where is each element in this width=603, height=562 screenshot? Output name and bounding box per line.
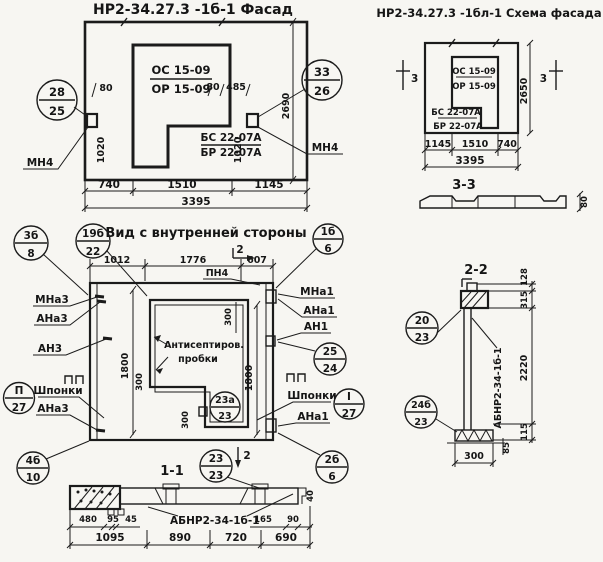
svg-text:МНа3: МНа3 xyxy=(35,294,69,306)
svg-text:3: 3 xyxy=(411,73,418,85)
view-label-ana1-bottom: АНа1 xyxy=(278,411,330,426)
view-callout-p-27: П 27 xyxy=(4,383,35,415)
svg-text:1776: 1776 xyxy=(180,255,207,266)
view-label-an3: АН3 xyxy=(33,339,106,355)
svg-text:1800: 1800 xyxy=(244,364,255,391)
svg-text:115: 115 xyxy=(520,423,530,441)
svg-text:2б: 2б xyxy=(325,454,340,466)
section-2-2-title: 2-2 xyxy=(464,263,488,278)
svg-text:3: 3 xyxy=(540,73,547,85)
section-1-1-callout-23-23: 23 23 xyxy=(200,450,262,489)
beam-mark-bs: БС 22-07А xyxy=(200,132,262,144)
section-1-1-left-block xyxy=(70,486,124,515)
svg-text:22: 22 xyxy=(86,246,101,258)
svg-text:БС 22-07А: БС 22-07А xyxy=(431,108,481,118)
svg-text:300: 300 xyxy=(181,411,191,429)
svg-text:3395: 3395 xyxy=(181,196,210,208)
svg-text:40: 40 xyxy=(306,490,316,502)
view-label-mna1: МНа1 xyxy=(278,286,335,298)
schema-dimensions: 2650 1145 1510 740 3395 xyxy=(422,40,533,171)
schema-section-mark-left: 3 xyxy=(396,60,418,90)
svg-text:1095: 1095 xyxy=(95,532,124,544)
svg-text:23: 23 xyxy=(209,470,224,482)
svg-text:27: 27 xyxy=(12,402,27,414)
panel-mark-or: ОР 15-09 xyxy=(152,82,211,96)
svg-text:300: 300 xyxy=(224,308,234,326)
svg-text:пробки: пробки xyxy=(178,354,218,365)
svg-text:165: 165 xyxy=(254,515,272,525)
svg-text:33: 33 xyxy=(314,65,330,79)
svg-text:740: 740 xyxy=(497,139,517,150)
svg-text:2690: 2690 xyxy=(281,92,292,119)
svg-text:АНа3: АНа3 xyxy=(37,403,68,415)
svg-text:85: 85 xyxy=(502,442,512,454)
section-2-2-label: АБНР2-34-1б-1 xyxy=(472,318,504,429)
svg-text:АБНР2-34-1б-1: АБНР2-34-1б-1 xyxy=(493,347,504,428)
svg-text:480: 480 xyxy=(79,515,97,525)
svg-text:4б: 4б xyxy=(26,455,41,467)
svg-text:23а: 23а xyxy=(215,395,235,406)
svg-text:МН4: МН4 xyxy=(27,157,54,169)
svg-text:740: 740 xyxy=(98,179,120,191)
svg-text:ОС 15-09: ОС 15-09 xyxy=(452,67,496,77)
svg-text:2220: 2220 xyxy=(519,354,530,381)
svg-text:2: 2 xyxy=(243,450,250,462)
svg-text:890: 890 xyxy=(169,532,191,544)
svg-text:26: 26 xyxy=(314,84,330,98)
svg-text:128: 128 xyxy=(520,268,530,286)
svg-text:1510: 1510 xyxy=(167,179,196,191)
section-3-3-title: 3-3 xyxy=(452,178,476,193)
svg-text:23: 23 xyxy=(218,411,231,422)
facade-anchor-label-left: МН4 xyxy=(23,127,88,169)
section-2-2: 2-2 АБНР2-34-1б-1 xyxy=(405,263,536,467)
svg-text:Шпонки: Шпонки xyxy=(33,385,82,397)
view-label-mna3: МНа3 xyxy=(33,294,97,306)
svg-text:3395: 3395 xyxy=(455,155,484,167)
facade-callout-left: 28 25 xyxy=(37,80,88,120)
view-note-antiseptic-plugs: Антисептиров. пробки xyxy=(154,335,244,374)
svg-text:300: 300 xyxy=(135,373,145,391)
svg-text:6: 6 xyxy=(324,243,331,255)
section-1-1: 1-1 АБНР2-34-1б-1 xyxy=(67,450,316,549)
view-label-ana1-top: АНа1 xyxy=(278,299,337,317)
section-3-3: 3-3 80 xyxy=(420,178,590,212)
svg-text:АН3: АН3 xyxy=(38,343,62,355)
facade-title: НР2-34.27.3 -1б-1 Фасад xyxy=(93,2,293,18)
view-callout-i-27: I 27 xyxy=(334,389,364,420)
facade-drawing: НР2-34.27.3 -1б-1 Фасад ОС 15-09 ОР 15-0… xyxy=(23,2,343,212)
svg-text:27: 27 xyxy=(342,408,357,420)
facade-dimensions: 80 1020 80 485 1020 2690 740 1510 1145 xyxy=(82,18,310,212)
section-1-1-title: 1-1 xyxy=(160,464,184,479)
svg-text:1145: 1145 xyxy=(425,139,451,150)
schema-section-mark-right: 3 xyxy=(540,60,563,90)
svg-text:2650: 2650 xyxy=(519,77,530,104)
svg-text:24б: 24б xyxy=(411,400,431,411)
view-callout-4b-10: 4б 10 xyxy=(17,441,89,484)
facade-anchor-label-right: МН4 xyxy=(258,127,343,154)
svg-text:1012: 1012 xyxy=(104,255,130,266)
svg-text:Антисептиров.: Антисептиров. xyxy=(164,340,244,351)
svg-text:Шпонки: Шпонки xyxy=(287,390,336,402)
svg-text:МНа1: МНа1 xyxy=(300,286,334,298)
anchor-plate-left xyxy=(87,114,97,127)
section-2-2-callout-24b-23: 24б 23 xyxy=(405,396,457,432)
svg-text:25: 25 xyxy=(49,104,65,118)
view-section-mark-2-bottom: 2 xyxy=(235,447,251,468)
svg-text:1800: 1800 xyxy=(120,352,131,379)
view-label-an1: АН1 xyxy=(277,321,331,340)
section-2-2-callout-20-23: 20 23 xyxy=(406,310,461,344)
view-callout-2b-6: 2б 6 xyxy=(278,433,348,483)
svg-text:19б: 19б xyxy=(82,228,104,240)
svg-text:1145: 1145 xyxy=(254,179,283,191)
svg-text:10: 10 xyxy=(26,472,41,484)
svg-text:90: 90 xyxy=(287,515,299,525)
view-callout-23a-23: 23а 23 xyxy=(210,392,240,422)
svg-text:80: 80 xyxy=(206,82,220,93)
svg-text:300: 300 xyxy=(464,451,484,462)
svg-text:ПН4: ПН4 xyxy=(206,268,229,279)
svg-text:23: 23 xyxy=(415,332,430,344)
svg-text:25: 25 xyxy=(323,346,338,358)
svg-text:АБНР2-34-1б-1: АБНР2-34-1б-1 xyxy=(170,515,260,527)
svg-text:23: 23 xyxy=(209,453,224,465)
svg-text:1020: 1020 xyxy=(96,136,107,163)
svg-text:АНа1: АНа1 xyxy=(303,305,334,317)
svg-text:АНа3: АНа3 xyxy=(36,313,67,325)
beam-mark-br: БР 22-07А xyxy=(200,147,262,159)
svg-text:1б: 1б xyxy=(321,226,336,238)
svg-text:45: 45 xyxy=(125,515,137,525)
drawing-sheet: НР2-34.27.3 -1б-1 Фасад ОС 15-09 ОР 15-0… xyxy=(0,0,603,562)
svg-text:20: 20 xyxy=(415,315,430,327)
svg-text:1020: 1020 xyxy=(233,136,244,163)
svg-text:I: I xyxy=(347,391,351,403)
svg-text:80: 80 xyxy=(99,83,113,94)
svg-text:95: 95 xyxy=(107,515,119,525)
svg-text:БР 22-07А: БР 22-07А xyxy=(433,122,483,132)
svg-text:24: 24 xyxy=(323,363,338,375)
svg-text:АН1: АН1 xyxy=(304,321,328,333)
svg-text:720: 720 xyxy=(225,532,247,544)
facade-callout-right: 33 26 xyxy=(258,60,342,117)
svg-text:485: 485 xyxy=(226,82,246,93)
svg-text:28: 28 xyxy=(49,85,65,99)
panel-mark-os: ОС 15-09 xyxy=(152,63,211,77)
svg-text:23: 23 xyxy=(414,417,427,428)
svg-text:6: 6 xyxy=(328,471,335,483)
svg-text:АНа1: АНа1 xyxy=(297,411,328,423)
svg-text:80: 80 xyxy=(580,196,590,208)
svg-text:8: 8 xyxy=(27,248,34,260)
view-title: Вид с внутренней стороны xyxy=(105,226,306,241)
section-3-3-profile xyxy=(420,196,566,208)
svg-text:3б: 3б xyxy=(24,230,39,242)
schema-title: НР2-34.27.3 -1бл-1 Схема фасада xyxy=(376,6,601,20)
svg-text:ОР 15-09: ОР 15-09 xyxy=(452,82,496,92)
view-section-mark-2-top: 2 xyxy=(233,244,255,261)
view-callout-25-24: 25 24 xyxy=(278,342,346,375)
svg-text:315: 315 xyxy=(520,291,530,309)
svg-text:2: 2 xyxy=(236,244,243,256)
svg-text:П: П xyxy=(15,385,24,397)
schema-drawing: НР2-34.27.3 -1бл-1 Схема фасада ОС 15-09… xyxy=(376,6,601,171)
svg-text:МН4: МН4 xyxy=(312,142,339,154)
anchor-plate-right xyxy=(247,114,258,127)
svg-text:1510: 1510 xyxy=(462,139,489,150)
svg-text:690: 690 xyxy=(275,532,297,544)
inside-view-drawing: Вид с внутренней стороны 1012 1776 607 2 xyxy=(4,224,365,484)
